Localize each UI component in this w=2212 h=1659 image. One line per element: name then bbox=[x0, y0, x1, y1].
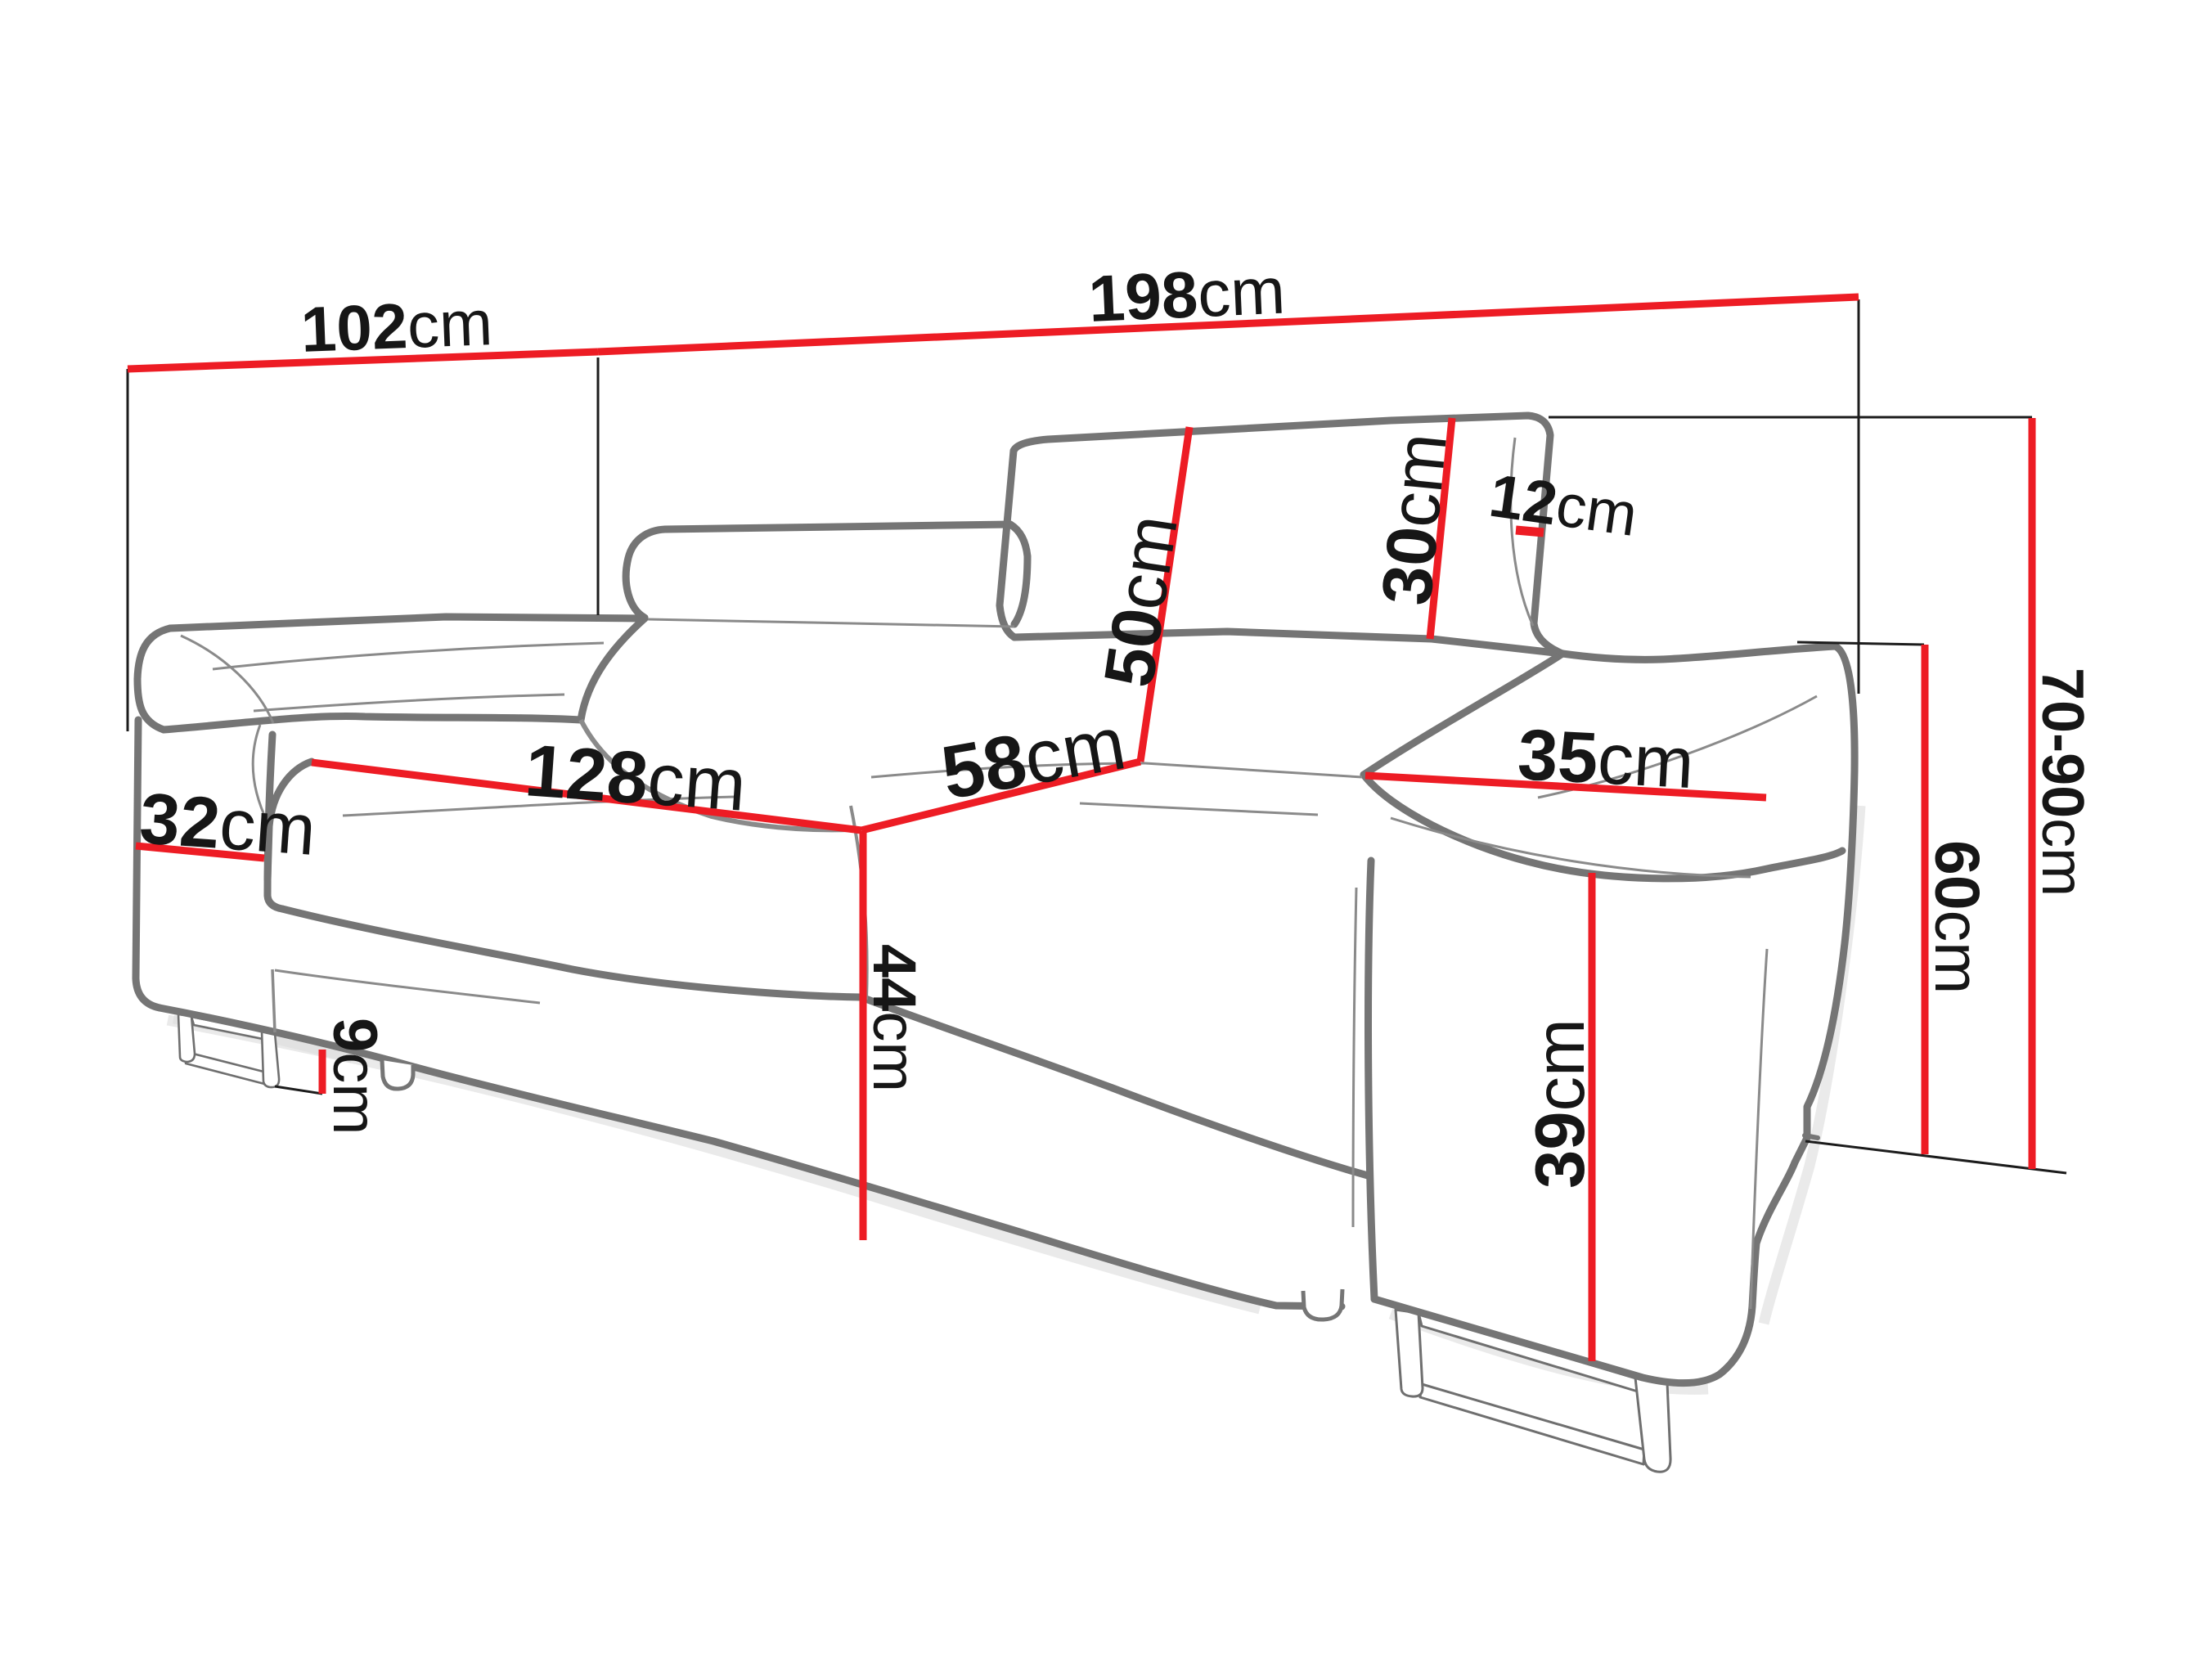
svg-text:102cm: 102cm bbox=[299, 286, 493, 366]
svg-text:44cm: 44cm bbox=[861, 944, 928, 1092]
svg-text:32cm: 32cm bbox=[137, 777, 319, 870]
svg-text:30cm: 30cm bbox=[1367, 429, 1462, 609]
svg-text:9cm: 9cm bbox=[320, 1018, 389, 1135]
svg-text:128cm: 128cm bbox=[523, 730, 749, 827]
svg-text:35cm: 35cm bbox=[1516, 713, 1696, 803]
svg-text:70-90cm: 70-90cm bbox=[2030, 668, 2095, 897]
svg-text:39cm: 39cm bbox=[1522, 1018, 1599, 1189]
svg-text:198cm: 198cm bbox=[1087, 254, 1287, 335]
svg-text:60cm: 60cm bbox=[1922, 840, 1992, 994]
